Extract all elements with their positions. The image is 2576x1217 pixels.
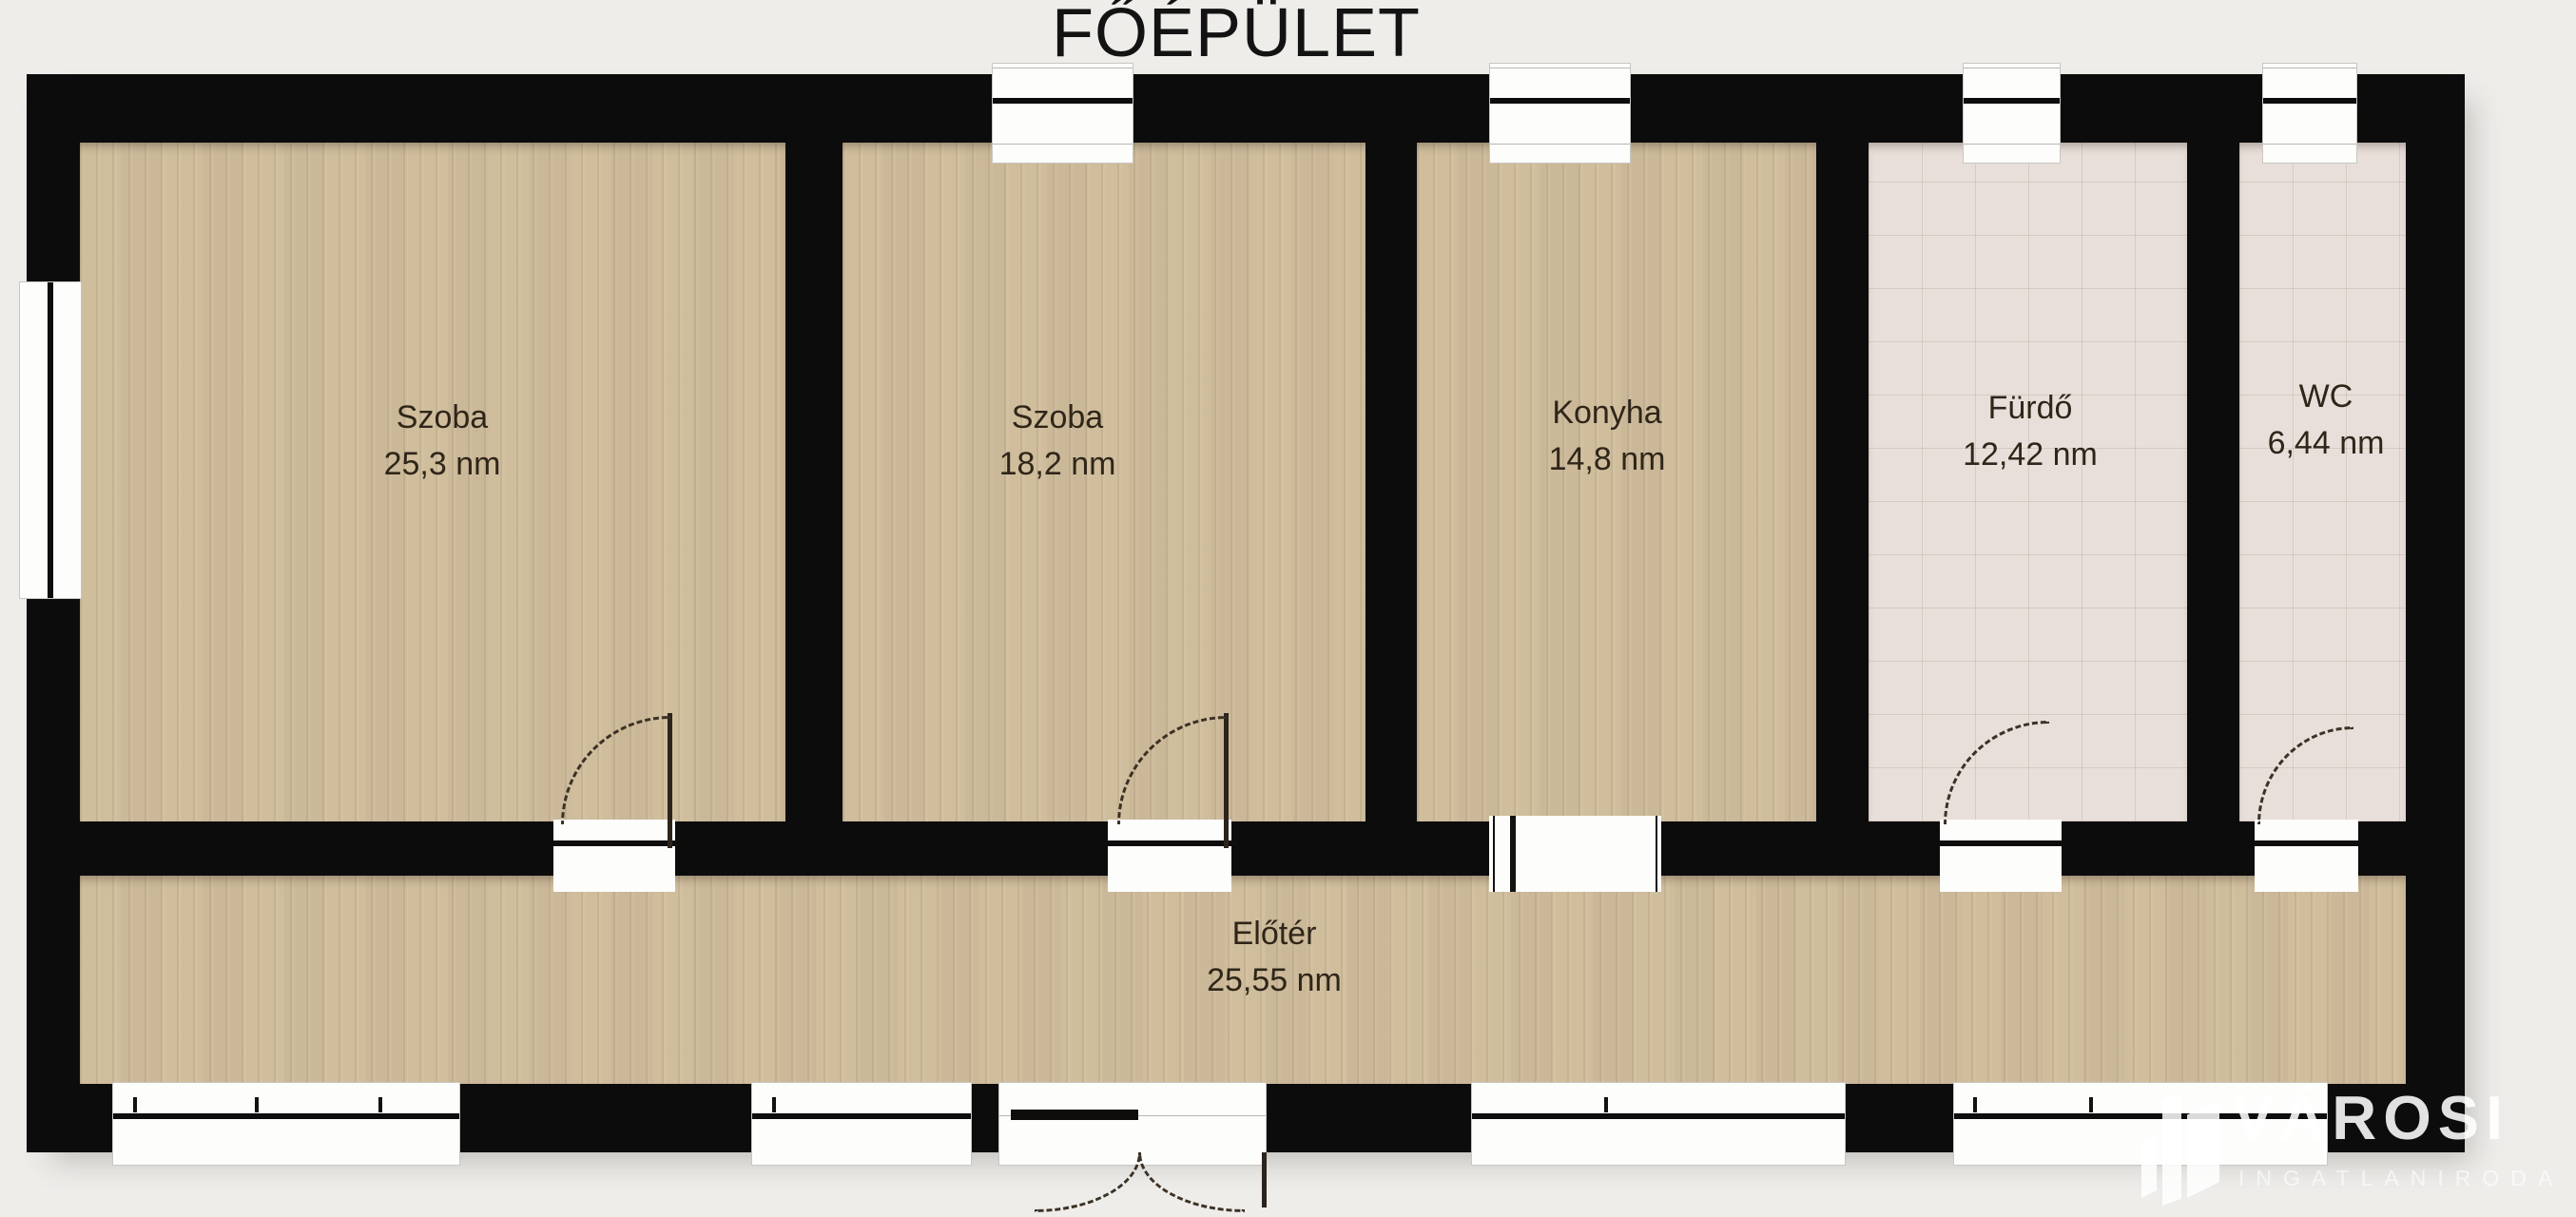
window-muntin	[772, 1097, 776, 1112]
window-muntin	[2089, 1097, 2093, 1112]
room-area: 25,55 nm	[1207, 957, 1342, 1004]
window-icon	[751, 1082, 972, 1166]
room-area: 18,2 nm	[999, 441, 1116, 488]
window-icon	[1963, 63, 2061, 164]
floorplan-canvas: FŐÉPÜLET	[0, 0, 2576, 1217]
door-opening-konyha	[1489, 816, 1661, 892]
door-opening-furdo	[1940, 820, 2062, 892]
wall-konyha-furdo	[1816, 143, 1869, 876]
wall-furdo-wc	[2187, 143, 2239, 876]
window-muntin	[255, 1097, 259, 1112]
wall-szoba1-szoba2	[785, 143, 843, 876]
room-floor-furdo	[1869, 143, 2187, 821]
entrance-door-leaf	[1262, 1152, 1267, 1207]
room-name: Szoba	[384, 395, 501, 441]
room-name: Konyha	[1549, 390, 1666, 436]
window-icon	[2262, 63, 2357, 164]
brand-logo-icon	[2162, 1093, 2181, 1206]
room-area: 25,3 nm	[384, 441, 501, 488]
room-name: Fürdő	[1963, 385, 2098, 432]
brand-tagline: INGATLANIRODA	[2238, 1166, 2564, 1191]
window-icon	[1471, 1082, 1846, 1166]
room-label-konyha: Konyha 14,8 nm	[1549, 390, 1666, 483]
brand-logo-icon	[2141, 1135, 2157, 1198]
room-area: 14,8 nm	[1549, 436, 1666, 483]
wall-right	[2406, 74, 2465, 1152]
room-name: Szoba	[999, 395, 1116, 441]
room-name: Előtér	[1207, 911, 1342, 957]
door-opening-wc	[2255, 820, 2358, 892]
room-area: 6,44 nm	[2268, 420, 2385, 467]
page-title: FŐÉPÜLET	[1052, 0, 1421, 72]
wall-top	[27, 74, 2465, 143]
window-icon	[19, 281, 82, 599]
room-floor-wc	[2239, 143, 2406, 821]
room-label-eloter: Előtér 25,55 nm	[1207, 911, 1342, 1004]
window-icon	[992, 63, 1133, 164]
entrance-door-swing-arc	[1138, 1152, 1245, 1212]
room-label-wc: WC 6,44 nm	[2268, 374, 2385, 467]
brand-wordmark: VÁROSI	[2233, 1082, 2509, 1153]
room-label-szoba-2: Szoba 18,2 nm	[999, 395, 1116, 488]
door-opening-szoba-1	[553, 820, 675, 892]
room-area: 12,42 nm	[1963, 432, 2098, 478]
room-label-furdo: Fürdő 12,42 nm	[1963, 385, 2098, 478]
window-muntin	[1604, 1097, 1608, 1112]
window-icon	[1489, 63, 1631, 164]
window-muntin	[133, 1097, 137, 1112]
window-muntin	[1973, 1097, 1977, 1112]
room-label-szoba-1: Szoba 25,3 nm	[384, 395, 501, 488]
door-opening-szoba-2	[1108, 820, 1231, 892]
entrance-door-swing-arc	[1035, 1152, 1141, 1212]
room-name: WC	[2268, 374, 2385, 420]
window-muntin	[378, 1097, 382, 1112]
wall-szoba2-konyha	[1365, 143, 1417, 876]
window-icon	[112, 1082, 460, 1166]
wall-left	[27, 74, 80, 1152]
brand-logo-icon	[2187, 1099, 2219, 1198]
